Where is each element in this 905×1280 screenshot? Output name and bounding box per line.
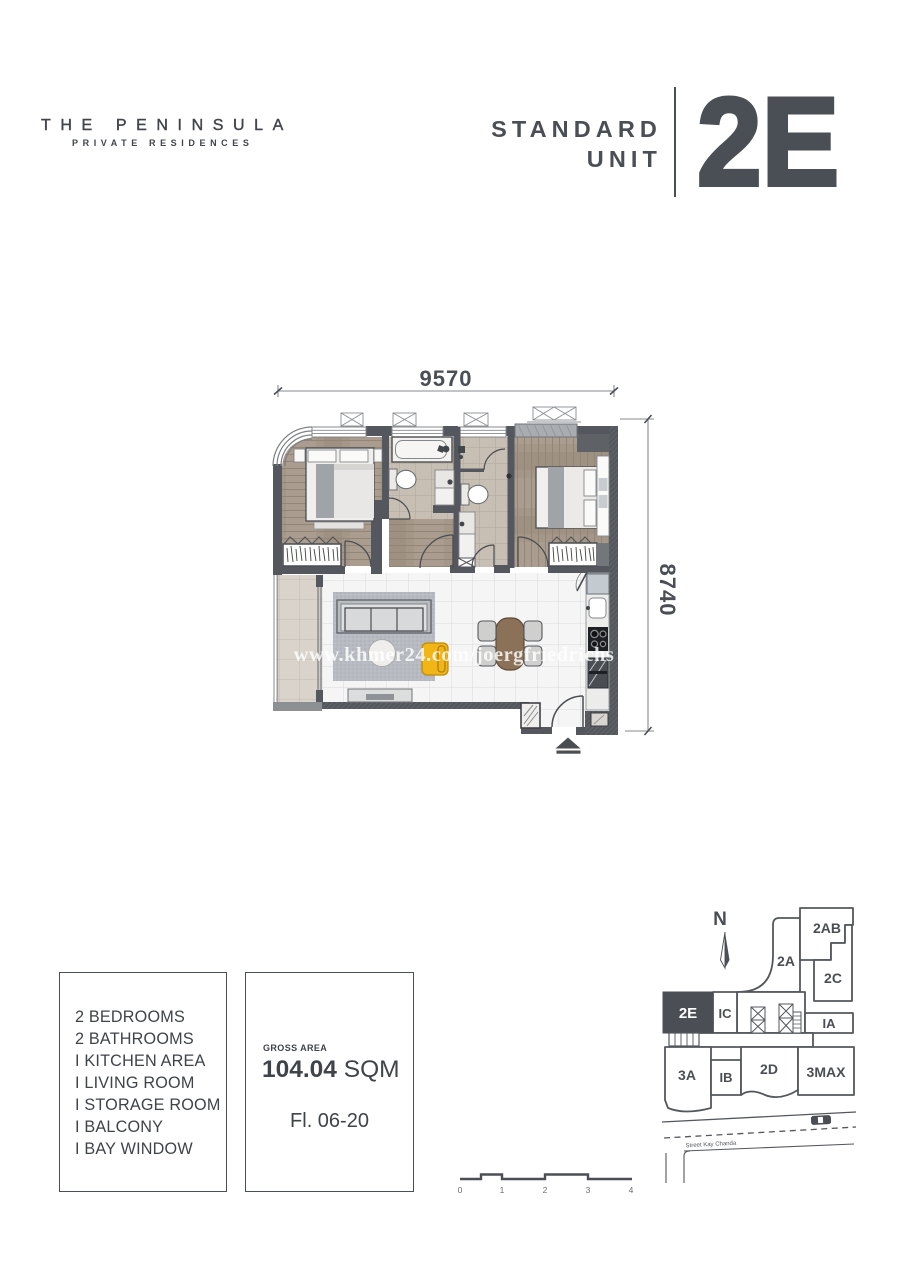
svg-text:3: 3 — [586, 1185, 591, 1195]
svg-text:2A: 2A — [777, 953, 795, 969]
svg-text:2D: 2D — [760, 1061, 778, 1077]
svg-text:2AB: 2AB — [813, 920, 841, 936]
svg-text:N: N — [713, 909, 727, 930]
svg-text:2C: 2C — [824, 970, 842, 986]
svg-text:Street Kay Chanda: Street Kay Chanda — [685, 1141, 737, 1150]
svg-text:8740: 8740 — [655, 564, 680, 617]
svg-text:0: 0 — [458, 1185, 463, 1195]
svg-text:1: 1 — [500, 1185, 505, 1195]
svg-text:IB: IB — [720, 1070, 733, 1085]
svg-text:3A: 3A — [678, 1067, 696, 1083]
svg-text:2: 2 — [543, 1185, 548, 1195]
svg-text:3MAX: 3MAX — [807, 1064, 847, 1080]
svg-text:2E: 2E — [679, 1005, 697, 1022]
svg-text:9570: 9570 — [420, 366, 473, 391]
svg-text:4: 4 — [629, 1185, 634, 1195]
svg-text:IA: IA — [823, 1016, 837, 1031]
svg-text:www.khmer24.com/joergfriedrich: www.khmer24.com/joergfriedrichs — [294, 644, 615, 666]
svg-text:IC: IC — [719, 1006, 733, 1021]
